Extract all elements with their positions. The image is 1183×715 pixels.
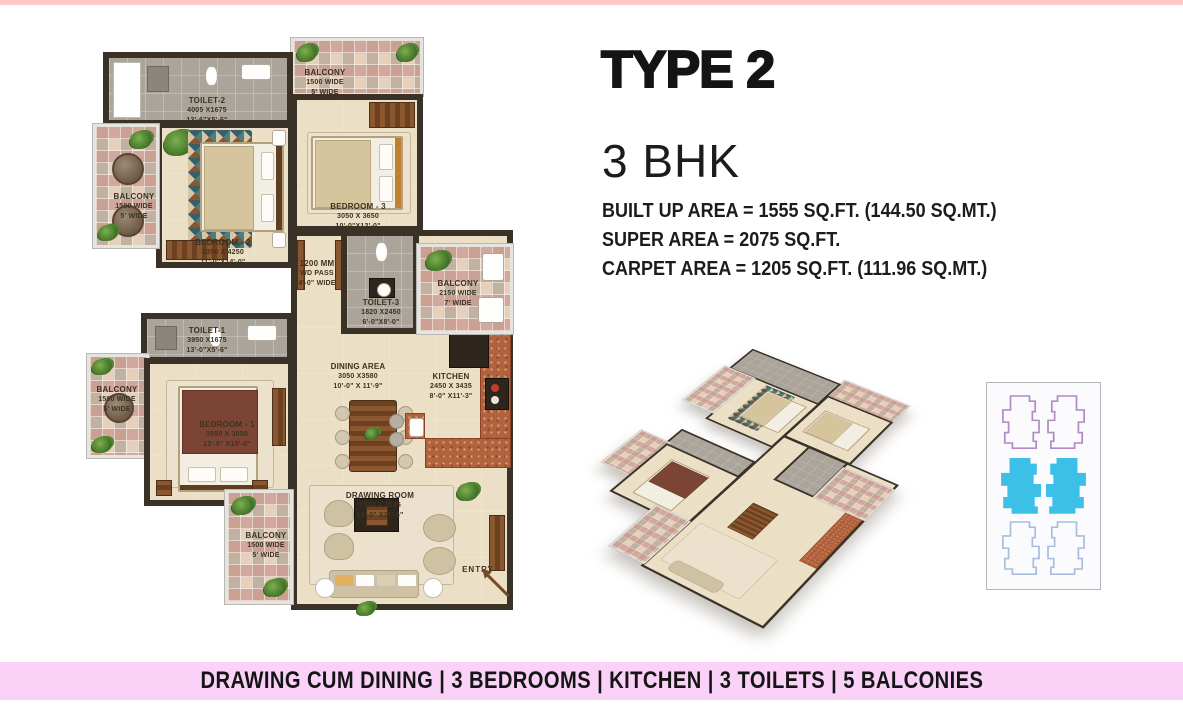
room-name: BALCONY bbox=[221, 530, 311, 541]
room-dims-ft: 13'-0" X10'-0" bbox=[182, 440, 272, 450]
floor-plan-2d: TOILET-2 4005 X1675 13'-6"X5'-6" BALCONY… bbox=[85, 38, 525, 634]
room-label-kitchen: KITCHEN 2450 X 3435 8'-0" X11'-3" bbox=[406, 371, 496, 402]
bed bbox=[311, 136, 403, 210]
room-label-balcony-right: BALCONY 2150 WIDE 7' WIDE bbox=[413, 278, 503, 309]
room-name: BALCONY bbox=[413, 278, 503, 289]
super-area-line: SUPER AREA = 2075 SQ.FT. bbox=[602, 226, 997, 255]
room-dims-mm: 1500 WIDE bbox=[221, 541, 311, 551]
room-dims-mm: 3050 X 3650 bbox=[313, 212, 403, 222]
plant-icon bbox=[98, 225, 118, 241]
brochure-page: TOILET-2 4005 X1675 13'-6"X5'-6" BALCONY… bbox=[0, 0, 1183, 715]
chair bbox=[335, 406, 350, 421]
room-name: TOILET-1 bbox=[162, 325, 252, 336]
plant-icon bbox=[92, 437, 112, 453]
blanket bbox=[204, 146, 254, 230]
room-dims-ft: 7' WIDE bbox=[413, 299, 503, 309]
wardrobe bbox=[272, 388, 286, 446]
stool bbox=[389, 432, 404, 447]
room-name: BALCONY bbox=[280, 67, 370, 78]
room-dims-ft: 8'-0" X11'-3" bbox=[406, 392, 496, 402]
plant-icon bbox=[232, 497, 254, 515]
room-dims-mm: 3950 X1675 bbox=[162, 336, 252, 346]
room-label-dining-area: DINING AREA 3050 X3580 10'-0" X 11'-9" bbox=[313, 361, 403, 392]
cushion bbox=[397, 574, 417, 587]
plant-icon bbox=[297, 44, 317, 62]
plant-icon bbox=[92, 359, 112, 375]
kitchen-counter bbox=[425, 438, 511, 468]
room-name: BALCONY bbox=[89, 191, 179, 202]
room-name: 1200 MM bbox=[272, 258, 362, 269]
sink-icon bbox=[241, 64, 271, 80]
room-dims-mm: 1500 WIDE bbox=[89, 202, 179, 212]
footer-summary-text: DRAWING CUM DINING | 3 BEDROOMS | KITCHE… bbox=[200, 667, 983, 695]
entry-label: ENTRY bbox=[445, 564, 511, 575]
isometric-3d-floor-plan bbox=[542, 292, 967, 652]
stool bbox=[389, 414, 404, 429]
cushion bbox=[376, 574, 396, 587]
cushion bbox=[334, 574, 354, 587]
side-table bbox=[315, 578, 335, 598]
room-label-toilet-1: TOILET-1 3950 X1675 13'-0"X5'-6" bbox=[162, 325, 252, 356]
room-dims-mm: 5500 X 3535 bbox=[335, 501, 425, 511]
plant-icon bbox=[457, 483, 479, 501]
planter-icon bbox=[112, 153, 144, 185]
kitchen-island bbox=[405, 413, 425, 439]
headboard bbox=[276, 144, 282, 230]
shower-icon bbox=[147, 66, 169, 92]
room-dims-ft: 5' WIDE bbox=[280, 88, 370, 98]
iso-blanket bbox=[805, 412, 853, 443]
nightstand bbox=[272, 130, 286, 146]
page-title: TYPE 2 bbox=[601, 40, 774, 100]
iso-kitchen-counter bbox=[799, 510, 865, 569]
sofa bbox=[329, 570, 419, 598]
pillow bbox=[379, 176, 393, 202]
balcony-left-upper bbox=[93, 124, 159, 248]
plant-icon bbox=[426, 251, 450, 271]
room-name: KITCHEN bbox=[406, 371, 496, 382]
built-up-area-line: BUILT UP AREA = 1555 SQ.FT. (144.50 SQ.M… bbox=[602, 197, 997, 226]
blanket bbox=[315, 140, 371, 208]
room-dims-mm: 3950 X 3050 bbox=[182, 430, 272, 440]
room-label-toilet-2: TOILET-2 4005 X1675 13'-6"X5'-6" bbox=[162, 95, 252, 126]
room-label-entry: ENTRY bbox=[445, 564, 511, 575]
room-label-balcony-top: BALCONY 1500 WIDE 5' WIDE bbox=[280, 67, 370, 98]
room-label-balcony-left-lower: BALCONY 1500 WIDE 5' WIDE bbox=[81, 384, 153, 415]
room-dims-ft: 5' WIDE bbox=[221, 551, 311, 561]
room-name: BEDROOM - 3 bbox=[313, 201, 403, 212]
room-name: BEDROOM - 1 bbox=[182, 419, 272, 430]
cushion bbox=[355, 574, 375, 587]
room-dims-ft: 13'-0"X5'-6" bbox=[162, 346, 252, 356]
room-dims-mm: 1500 WIDE bbox=[280, 78, 370, 88]
sink-icon bbox=[409, 418, 424, 437]
chair bbox=[335, 454, 350, 469]
plant-icon bbox=[357, 602, 375, 616]
room-dims-ft: 13'-6"X5'-6" bbox=[162, 116, 252, 126]
toilet-icon bbox=[375, 242, 388, 262]
room-dims-ft: 6'-0"X8'-0" bbox=[336, 318, 426, 328]
carpet-area-line: CARPET AREA = 1205 SQ.FT. (111.96 SQ.MT.… bbox=[602, 255, 997, 284]
room-dims-mm: 3050 X3580 bbox=[313, 372, 403, 382]
chair bbox=[335, 430, 350, 445]
room-dims-ft: 18'-0" X11'-6" bbox=[335, 511, 425, 521]
shaft-panel bbox=[113, 62, 141, 118]
chair bbox=[398, 454, 413, 469]
plant-icon bbox=[397, 44, 417, 62]
side-table bbox=[423, 578, 443, 598]
iso-dining-table bbox=[727, 503, 778, 540]
room-dims-mm: WD PASS bbox=[272, 269, 362, 279]
room-name: BALCONY bbox=[81, 384, 153, 395]
pillow bbox=[220, 467, 248, 482]
area-details: BUILT UP AREA = 1555 SQ.FT. (144.50 SQ.M… bbox=[602, 197, 997, 284]
room-dims-ft: 5' WIDE bbox=[89, 212, 179, 222]
refrigerator bbox=[449, 332, 489, 368]
room-dims-ft: 4'-0" WIDE bbox=[272, 279, 362, 289]
room-dims-ft: 5' WIDE bbox=[81, 405, 153, 415]
wardrobe bbox=[369, 102, 415, 128]
room-label-bedroom-1: BEDROOM - 1 3950 X 3050 13'-0" X10'-0" bbox=[182, 419, 272, 450]
iso-stage bbox=[526, 342, 962, 643]
room-dims-ft: 10'-0"X12'-0" bbox=[313, 222, 403, 232]
nightstand bbox=[272, 232, 286, 248]
key-plan-diagram bbox=[986, 381, 1101, 591]
room-label-drawing-room: DRAWING ROOM 5500 X 3535 18'-0" X11'-6" bbox=[335, 490, 425, 521]
bhk-subtitle: 3 BHK bbox=[602, 134, 740, 188]
plant-icon bbox=[130, 131, 152, 149]
room-name: DRAWING ROOM bbox=[335, 490, 425, 501]
room-dims-mm: 4005 X1675 bbox=[162, 106, 252, 116]
pillow bbox=[261, 194, 274, 222]
pillow bbox=[261, 152, 274, 180]
room-dims-ft: 11'-0"X14'-0" bbox=[178, 258, 268, 268]
footer-summary-bar: DRAWING CUM DINING | 3 BEDROOMS | KITCHE… bbox=[0, 662, 1183, 700]
room-dims-mm: 3350 X 4250 bbox=[178, 248, 268, 258]
iso-bed bbox=[632, 459, 710, 511]
lounge-chair bbox=[324, 533, 354, 560]
room-dims-mm: 2150 WIDE bbox=[413, 289, 503, 299]
room-name: BEDROOM - 2 bbox=[178, 237, 268, 248]
room-label-bedroom-3: BEDROOM - 3 3050 X 3650 10'-0"X12'-0" bbox=[313, 201, 403, 232]
headboard bbox=[395, 138, 401, 208]
iso-bed bbox=[802, 410, 870, 451]
sink-icon bbox=[377, 283, 391, 297]
key-plan bbox=[986, 381, 1101, 591]
shoe-cabinet bbox=[489, 515, 505, 571]
plant-icon bbox=[264, 579, 286, 597]
room-name: DINING AREA bbox=[313, 361, 403, 372]
armchair bbox=[423, 514, 456, 542]
pillow bbox=[379, 144, 393, 170]
bed bbox=[200, 142, 284, 232]
toilet-icon bbox=[205, 66, 218, 86]
room-label-balcony-bottom: BALCONY 1500 WIDE 5' WIDE bbox=[221, 530, 311, 561]
iso-blanket bbox=[648, 461, 708, 499]
room-dims-mm: 1820 X2450 bbox=[336, 308, 426, 318]
nightstand bbox=[156, 480, 172, 496]
top-accent-bar bbox=[0, 0, 1183, 5]
room-dims-ft: 10'-0" X 11'-9" bbox=[313, 382, 403, 392]
room-label-wd-pass: 1200 MM WD PASS 4'-0" WIDE bbox=[272, 258, 362, 289]
room-dims-mm: 2450 X 3435 bbox=[406, 382, 496, 392]
room-label-bedroom-2: BEDROOM - 2 3350 X 4250 11'-0"X14'-0" bbox=[178, 237, 268, 268]
vanity bbox=[369, 278, 395, 298]
room-dims-mm: 1500 WIDE bbox=[81, 395, 153, 405]
washbasin bbox=[482, 253, 504, 281]
room-label-balcony-left-upper: BALCONY 1500 WIDE 5' WIDE bbox=[89, 191, 179, 222]
pillow bbox=[188, 467, 216, 482]
room-name: TOILET-2 bbox=[162, 95, 252, 106]
